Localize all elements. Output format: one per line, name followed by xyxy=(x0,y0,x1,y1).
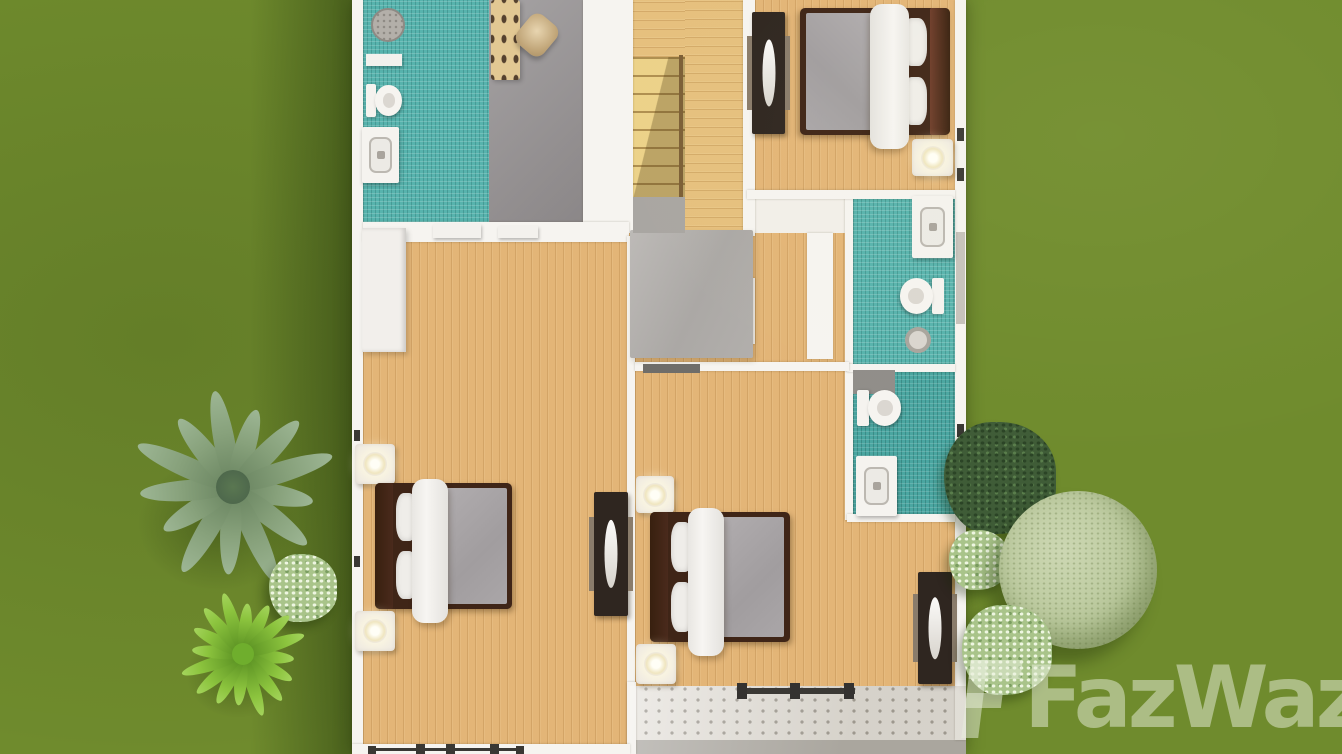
tv-console-bedroom-left xyxy=(594,492,628,616)
toilet-top-left xyxy=(366,83,404,118)
sink-basin xyxy=(864,467,889,505)
bush-flower-left xyxy=(269,554,337,622)
lamp-glow xyxy=(644,652,668,676)
nightstand-bedroom-top xyxy=(912,139,953,176)
sink-basin xyxy=(920,207,945,247)
rug-hall-landing xyxy=(630,230,753,358)
toilet-bowl xyxy=(375,85,402,116)
wall-closet-stairs xyxy=(583,0,633,233)
plant-core xyxy=(232,643,254,665)
toilet-tank xyxy=(932,278,944,315)
wardrobe-bedroom-left xyxy=(362,228,406,352)
window-sill-bottom xyxy=(368,748,524,751)
bed-headboard xyxy=(650,512,668,642)
nightstand-mid-upper xyxy=(636,476,674,513)
sink-vanity-bath-lower xyxy=(856,456,897,516)
floor-drain-bath-upper xyxy=(905,327,931,353)
bed-duvet xyxy=(412,479,448,623)
tv-decor xyxy=(605,520,618,588)
bed-duvet xyxy=(871,4,910,149)
stair-bottom-landing xyxy=(633,197,685,233)
fazwaz-watermark: FazWaz xyxy=(950,646,1342,754)
toilet-bath-upper xyxy=(898,276,944,316)
nightstand-left-lower xyxy=(355,611,395,651)
toilet-bowl xyxy=(900,278,933,313)
window-band-right xyxy=(956,232,965,324)
logo-bar-top xyxy=(968,660,1022,679)
room-upper-hall xyxy=(685,0,743,236)
toilet-bowl xyxy=(868,390,901,425)
shower-head-top-left xyxy=(371,8,405,42)
fazwaz-logo-icon xyxy=(961,660,1023,738)
door-threshold-hall xyxy=(643,364,700,373)
door-threshold-b xyxy=(498,226,538,238)
bed-headboard xyxy=(931,8,951,135)
tv-console-bedroom-middle xyxy=(918,572,952,684)
bed-duvet xyxy=(688,508,724,656)
lamp-glow xyxy=(363,452,387,476)
window-mark-right-1 xyxy=(957,128,964,141)
sink-vanity-top-left xyxy=(362,127,399,183)
lamp-glow xyxy=(643,483,667,507)
room-staircase xyxy=(633,57,685,200)
room-stair-top-landing xyxy=(633,0,685,57)
tv-decor xyxy=(762,39,775,106)
bed-bedroom-middle xyxy=(650,512,790,642)
stair-banister xyxy=(679,55,683,202)
wall-bathrooms-left xyxy=(845,195,853,520)
wall-hall-bathroom xyxy=(807,233,833,359)
sink-basin xyxy=(369,137,391,173)
toilet-bath-lower xyxy=(857,388,903,428)
bed-headboard xyxy=(375,483,393,609)
palm-core xyxy=(216,470,250,504)
railing-post xyxy=(737,683,747,699)
fazwaz-logo-text: FazWaz xyxy=(1024,650,1342,746)
window-mark-left-1 xyxy=(354,430,360,441)
railing-post xyxy=(844,683,854,699)
door-threshold-a xyxy=(433,224,481,238)
sink-vanity-bath-upper xyxy=(912,196,953,258)
bed-bedroom-left xyxy=(375,483,512,609)
tv-console-bedroom-top xyxy=(752,12,785,134)
nightstand-left-upper xyxy=(355,444,395,484)
nightstand-mid-lower xyxy=(636,644,676,684)
tv-decor xyxy=(929,597,942,659)
bath-shelf-top-left xyxy=(366,54,402,66)
railing-post xyxy=(790,683,800,699)
window-mark-right-2 xyxy=(957,168,964,181)
floorplan-canvas: FazWaz xyxy=(0,0,1342,754)
lamp-glow xyxy=(363,619,387,643)
logo-bar-middle xyxy=(965,693,1003,708)
bed-bedroom-top xyxy=(800,8,950,135)
lamp-glow xyxy=(921,146,945,170)
balcony-railing xyxy=(737,683,855,699)
window-mark-left-2 xyxy=(354,556,360,567)
